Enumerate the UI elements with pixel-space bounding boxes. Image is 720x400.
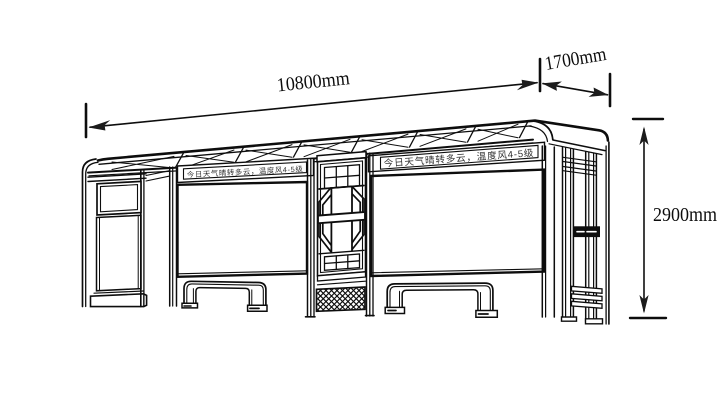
svg-text:2900mm: 2900mm bbox=[653, 204, 717, 226]
svg-text:10800mm: 10800mm bbox=[276, 68, 351, 96]
svg-text:1700mm: 1700mm bbox=[543, 44, 608, 75]
